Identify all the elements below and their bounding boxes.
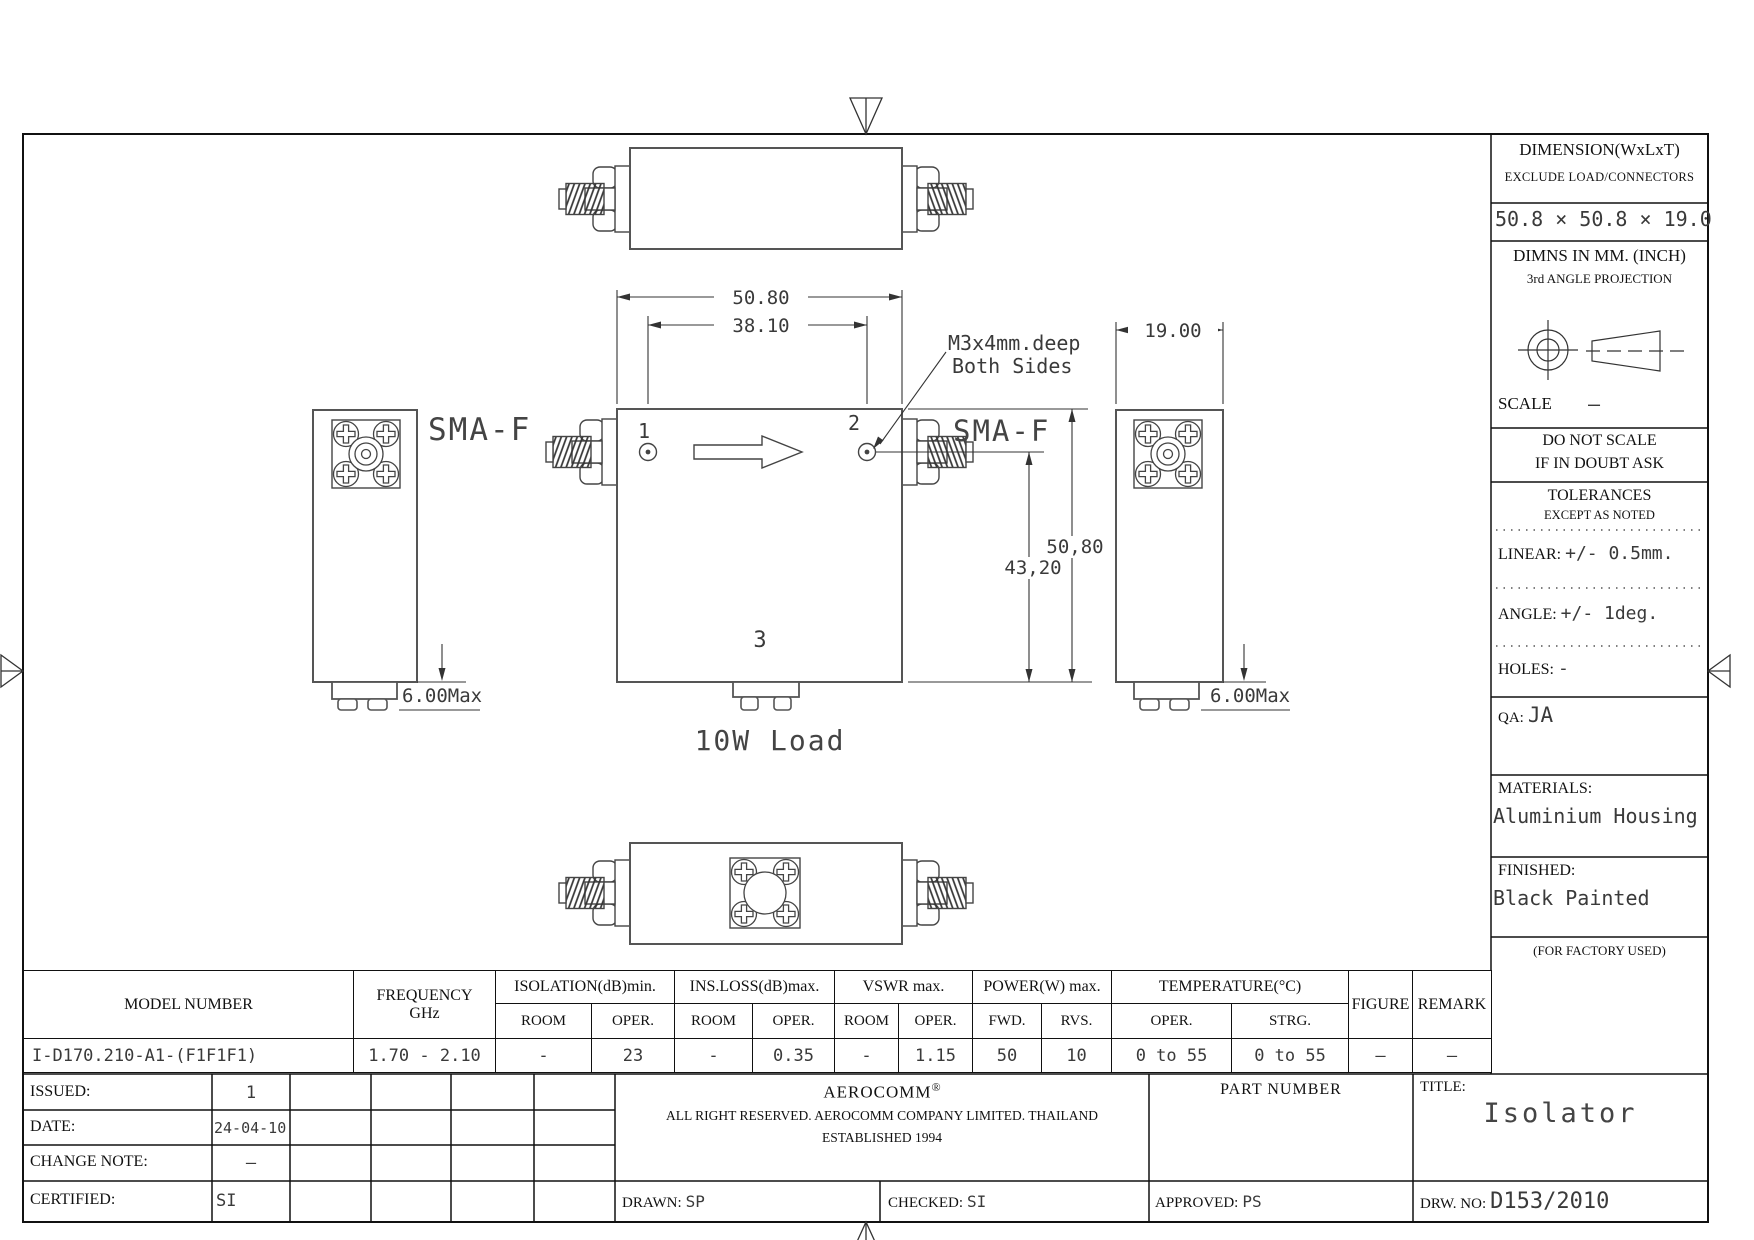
- panel-dimension-title: DIMENSION(WxLxT): [1491, 140, 1708, 160]
- change-note-label: CHANGE NOTE:: [30, 1153, 148, 1171]
- center-mark-bottom-icon: [850, 1222, 882, 1240]
- part-number-label: PART NUMBER: [1149, 1081, 1413, 1099]
- col-isolation-room: ROOM: [496, 1004, 592, 1039]
- company-line1: ALL RIGHT RESERVED. AEROCOMM COMPANY LIM…: [615, 1108, 1149, 1124]
- col-temp-oper: OPER.: [1112, 1004, 1232, 1039]
- right-side-view: [1116, 410, 1223, 710]
- panel-do-not-scale-line1: DO NOT SCALE: [1491, 432, 1708, 450]
- panel-linear-value: +/- 0.5mm.: [1565, 543, 1673, 564]
- panel-angle-row: ANGLE: +/- 1deg.: [1498, 603, 1658, 624]
- col-vswr-oper: OPER.: [899, 1004, 973, 1039]
- thread-note-line2: Both Sides: [952, 354, 1072, 378]
- cell-power-rvs: 10: [1042, 1039, 1112, 1073]
- panel-angle-label: ANGLE:: [1498, 606, 1557, 623]
- drw-no-value: D153/2010: [1490, 1189, 1609, 1214]
- panel-holes-label: HOLES:: [1498, 661, 1554, 678]
- port1-label: 1: [636, 419, 652, 443]
- cell-temp-strg: 0 to 55: [1232, 1039, 1349, 1073]
- col-insloss: INS.LOSS(dB)max.: [675, 971, 835, 1004]
- checked-row: CHECKED: SI: [888, 1192, 986, 1212]
- center-mark-left-icon: [1, 655, 23, 687]
- load-stub: [733, 682, 799, 697]
- col-isolation: ISOLATION(dB)min.: [496, 971, 675, 1004]
- panel-dimension-value: 50.8 × 50.8 × 19.0: [1495, 207, 1712, 231]
- title-label: TITLE:: [1420, 1079, 1466, 1096]
- panel-holes-row: HOLES: -: [1498, 658, 1569, 679]
- cell-isolation-oper: 23: [592, 1039, 675, 1073]
- panel-tolerances-sub: EXCEPT AS NOTED: [1491, 508, 1708, 523]
- top-view: [559, 148, 973, 249]
- drawn-row: DRAWN: SP: [622, 1192, 705, 1212]
- col-insloss-oper: OPER.: [753, 1004, 835, 1039]
- panel-materials-value: Aluminium Housing: [1493, 804, 1698, 828]
- col-vswr-room: ROOM: [835, 1004, 899, 1039]
- bottom-view: [559, 843, 973, 944]
- approved-row: APPROVED: PS: [1155, 1192, 1262, 1212]
- center-mark-top-icon: [850, 98, 882, 134]
- col-frequency-line1: FREQUENCY: [354, 987, 495, 1005]
- panel-qa-value: JA: [1528, 703, 1553, 727]
- cell-frequency: 1.70 - 2.10: [354, 1039, 496, 1073]
- certified-value: SI: [216, 1191, 236, 1211]
- col-isolation-oper: OPER.: [592, 1004, 675, 1039]
- panel-finished-value: Black Painted: [1493, 886, 1650, 910]
- date-value: 24-04-10: [214, 1119, 286, 1137]
- dim-depth: 19.00: [1128, 320, 1218, 342]
- dim-load-left: 6.00Max: [399, 685, 485, 707]
- sma-label-right: SMA-F: [953, 414, 1050, 448]
- load-label: 10W Load: [688, 724, 852, 757]
- dim-height: 50,80: [1041, 536, 1109, 558]
- col-model: MODEL NUMBER: [24, 971, 354, 1039]
- drw-no-label: DRW. NO:: [1420, 1196, 1486, 1212]
- col-power-fwd: FWD.: [973, 1004, 1042, 1039]
- dim-port-height: 43,20: [999, 557, 1067, 579]
- company-name-row: AEROCOMM®: [615, 1080, 1149, 1102]
- company-line2: ESTABLISHED 1994: [615, 1130, 1149, 1146]
- cell-temp-oper: 0 to 55: [1112, 1039, 1232, 1073]
- col-temp-strg: STRG.: [1232, 1004, 1349, 1039]
- drw-no-row: DRW. NO: D153/2010: [1420, 1189, 1609, 1214]
- port3-label: 3: [750, 628, 770, 653]
- panel-holes-value: -: [1558, 658, 1569, 679]
- panel-dimension-sub: EXCLUDE LOAD/CONNECTORS: [1491, 170, 1708, 185]
- approved-label: APPROVED:: [1155, 1195, 1238, 1211]
- cell-isolation-room: -: [496, 1039, 592, 1073]
- panel-tolerances-title: TOLERANCES: [1491, 487, 1708, 505]
- cell-figure: —: [1349, 1039, 1413, 1073]
- panel-linear-label: LINEAR:: [1498, 546, 1561, 563]
- drawn-label: DRAWN:: [622, 1195, 682, 1211]
- date-label: DATE:: [30, 1118, 75, 1136]
- col-vswr: VSWR max.: [835, 971, 973, 1004]
- drawn-value: SP: [686, 1192, 705, 1211]
- cell-vswr-room: -: [835, 1039, 899, 1073]
- col-remark: REMARK: [1413, 971, 1492, 1039]
- spec-table: MODEL NUMBER FREQUENCY GHz ISOLATION(dB)…: [23, 970, 1492, 1073]
- panel-dimns-line1: DIMNS IN MM. (INCH): [1491, 246, 1708, 266]
- panel-dimns-line2: 3rd ANGLE PROJECTION: [1491, 271, 1708, 287]
- col-figure: FIGURE: [1349, 971, 1413, 1039]
- col-power: POWER(W) max.: [973, 971, 1112, 1004]
- cell-vswr-oper: 1.15: [899, 1039, 973, 1073]
- checked-value: SI: [967, 1192, 986, 1211]
- panel-qa-label: QA:: [1498, 710, 1524, 726]
- left-side-view: [313, 410, 417, 710]
- panel-materials-label: MATERIALS:: [1498, 780, 1592, 798]
- change-note-value: –: [212, 1153, 290, 1173]
- drawing-sheet: 50.80 38.10 19.00 M3x4mm.deep Both Sides…: [0, 0, 1754, 1240]
- panel-qa-row: QA: JA: [1498, 703, 1553, 727]
- panel-scale-value: —: [1588, 392, 1600, 416]
- dim-hole-span: 38.10: [714, 315, 808, 337]
- company-name: AEROCOMM: [823, 1082, 931, 1101]
- panel-finished-label: FINISHED:: [1498, 862, 1575, 880]
- title-value: Isolator: [1413, 1098, 1708, 1129]
- col-frequency-line2: GHz: [354, 1005, 495, 1023]
- dim-width-top: 50.80: [714, 287, 808, 309]
- certified-label: CERTIFIED:: [30, 1191, 115, 1209]
- sma-label-left: SMA-F: [428, 412, 531, 448]
- center-mark-right-icon: [1708, 655, 1730, 687]
- registered-trademark-icon: ®: [932, 1080, 941, 1094]
- cell-insloss-oper: 0.35: [753, 1039, 835, 1073]
- approved-value: PS: [1242, 1192, 1261, 1211]
- front-view: [546, 409, 973, 710]
- panel-scale-label: SCALE: [1498, 394, 1552, 414]
- checked-label: CHECKED:: [888, 1195, 963, 1211]
- port2-label: 2: [846, 411, 862, 435]
- third-angle-projection-icon: [1518, 320, 1690, 380]
- cell-power-fwd: 50: [973, 1039, 1042, 1073]
- col-frequency: FREQUENCY GHz: [354, 971, 496, 1039]
- col-insloss-room: ROOM: [675, 1004, 753, 1039]
- table-row: I-D170.210-A1-(F1F1F1) 1.70 - 2.10 - 23 …: [24, 1039, 1492, 1073]
- issued-label: ISSUED:: [30, 1083, 90, 1101]
- col-power-rvs: RVS.: [1042, 1004, 1112, 1039]
- thread-note-line1: M3x4mm.deep: [948, 331, 1080, 355]
- cell-insloss-room: -: [675, 1039, 753, 1073]
- panel-linear-row: LINEAR: +/- 0.5mm.: [1498, 543, 1673, 564]
- cell-model: I-D170.210-A1-(F1F1F1): [24, 1039, 354, 1073]
- col-temperature: TEMPERATURE(°C): [1112, 971, 1349, 1004]
- panel-factory-note: (FOR FACTORY USED): [1491, 943, 1708, 959]
- dim-load-right: 6.00Max: [1207, 685, 1293, 707]
- panel-do-not-scale-line2: IF IN DOUBT ASK: [1491, 455, 1708, 473]
- panel-angle-value: +/- 1deg.: [1561, 603, 1659, 624]
- cell-remark: —: [1413, 1039, 1492, 1073]
- issued-value: 1: [212, 1083, 290, 1103]
